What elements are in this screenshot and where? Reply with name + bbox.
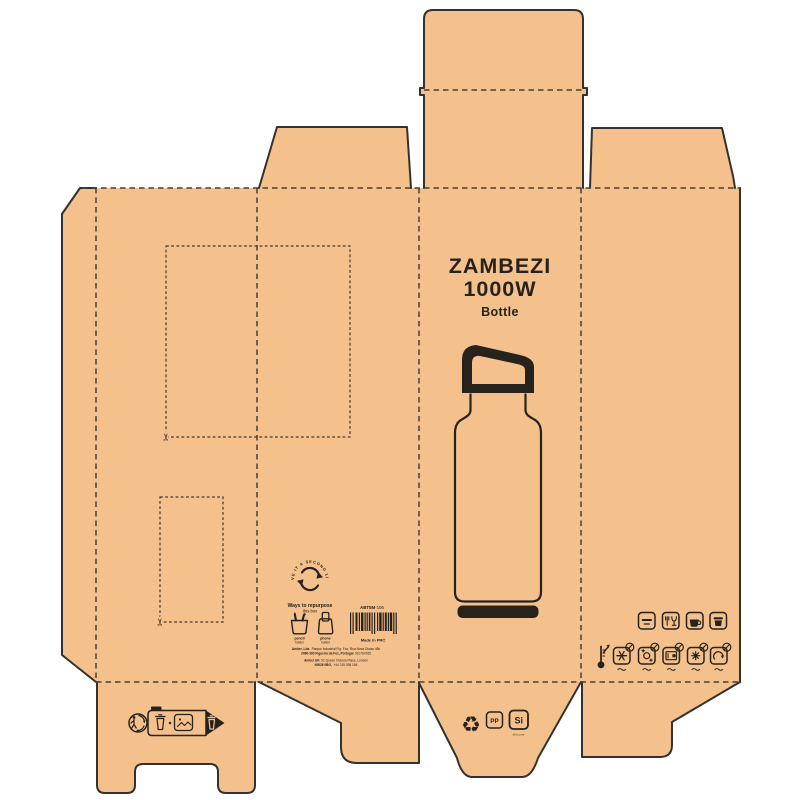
made-in-label: Made in PRC	[361, 638, 386, 643]
address-line-3: Amber UK51 Queen Victoria Place, London	[304, 659, 368, 663]
si-caption: silicone	[513, 733, 525, 737]
product-title-line2: 1000W	[463, 277, 536, 301]
repurpose-subheading: this box	[303, 609, 318, 614]
si-label: Si	[514, 715, 523, 725]
address-line-1: Amber, Lda.Parque Industrial Fig. Foz, R…	[292, 647, 381, 651]
address-line-4: NW26 0BG,+44 745 098 166	[315, 663, 358, 667]
packaging-dieline-canvas: ✂ ✂ ZAMBEZI 1000W Bottle GIVE IT A SECON…	[0, 0, 800, 800]
dieline-drawing: ✂ ✂ ZAMBEZI 1000W Bottle GIVE IT A SECON…	[0, 0, 800, 800]
recycle-loop-icon: ♻	[461, 713, 481, 738]
product-title-line1: ZAMBEZI	[449, 254, 552, 278]
sku-code: ABT5M-106	[360, 605, 384, 610]
address-line-2: 3080-360 Figueira da Foz, Portugal910764…	[301, 652, 371, 656]
pp-label: PP	[490, 718, 499, 725]
product-subtitle: Bottle	[481, 305, 519, 319]
scissors-icon: ✂	[162, 433, 173, 441]
pencil-holder-label: holder	[295, 640, 305, 644]
scissors-icon: ✂	[156, 618, 167, 626]
phone-holder-label: holder	[321, 640, 331, 644]
separator-dot	[169, 722, 171, 724]
bottle-base	[458, 606, 539, 619]
